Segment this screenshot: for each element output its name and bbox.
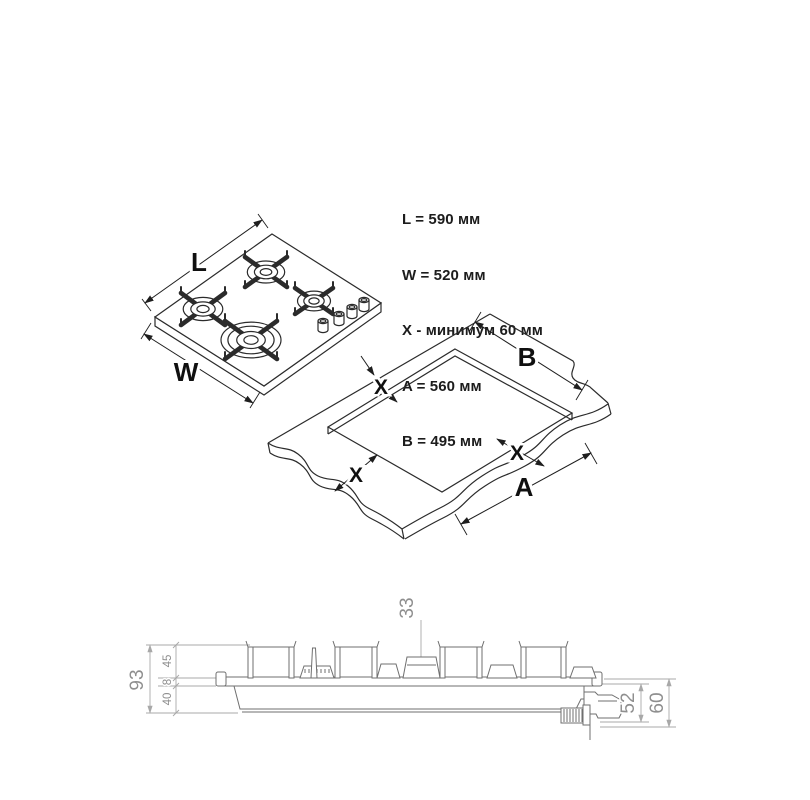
label-length: L (191, 247, 207, 277)
spec-line-l: L = 590 мм (402, 211, 543, 230)
label-clearance-x: X (374, 376, 388, 399)
side-elevation-view: 93 45 8 40 33 (115, 585, 695, 755)
dimension-cap-height-33: 33 (397, 597, 421, 657)
label-33: 33 (397, 597, 418, 618)
burner-cap-33 (403, 657, 440, 678)
pan-support-bracket (438, 641, 484, 678)
countertop-surface (268, 314, 611, 539)
label-45: 45 (162, 655, 174, 668)
burner-cap-profile (377, 664, 400, 678)
pan-support-bracket (246, 641, 296, 678)
dimension-stack-45-8-40: 45 8 40 (162, 642, 179, 716)
lower-body (234, 686, 584, 709)
label-clearance-x: X (510, 442, 524, 465)
igniter-post (311, 648, 317, 678)
label-60: 60 (647, 692, 668, 713)
dimension-cutout-b: B (469, 312, 588, 400)
gas-connector (561, 692, 621, 740)
installation-diagram-page: L W L = 590 мм W = 520 мм X - минимум 60… (0, 0, 810, 800)
label-width: W (174, 357, 199, 387)
glass-left-edge (216, 672, 226, 686)
label-8: 8 (162, 679, 174, 685)
label-40: 40 (162, 693, 174, 706)
dimension-pipe-depth-52: 52 (618, 684, 641, 722)
dimension-total-depth-60: 60 (647, 679, 669, 727)
spec-line-w: W = 520 мм (402, 267, 543, 286)
label-52: 52 (618, 692, 639, 713)
label-cutout-a: A (515, 472, 534, 502)
burner-cap-profile (487, 665, 517, 678)
dimension-cutout-a: A (455, 443, 597, 535)
label-93: 93 (127, 669, 148, 690)
label-cutout-b: B (518, 342, 537, 372)
clearance-x-left: X (335, 455, 377, 491)
pan-support-bracket (519, 641, 568, 678)
clearance-x-right: X (497, 439, 544, 466)
pan-support-bracket (333, 641, 379, 678)
hob-side-profile (216, 641, 621, 740)
label-clearance-x: X (349, 464, 363, 487)
burner-cap-profile (570, 667, 596, 678)
countertop-cutout-view: B A X X X (255, 300, 635, 550)
dimension-overall-height-93: 93 (127, 645, 150, 713)
